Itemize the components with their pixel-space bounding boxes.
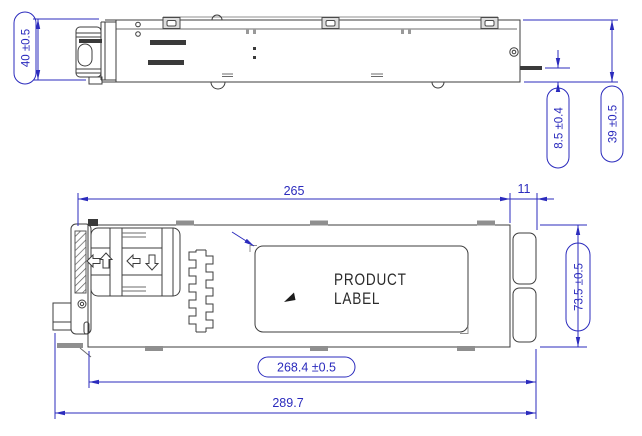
side-handle-grip-strip xyxy=(79,39,102,43)
product-label-line1-wrap: PRODUCT xyxy=(334,271,407,290)
dim-text-73-5: 73.5 ±0.5 xyxy=(574,263,586,311)
dim-plan-connector-depth: 11 xyxy=(510,182,554,230)
plan-connector-top xyxy=(513,233,536,284)
clip-3-loop xyxy=(485,21,494,27)
side-slot-2 xyxy=(148,60,184,65)
side-bottom-bumps xyxy=(211,82,444,89)
dim-side-tab-offset: 8.5 ±0.4 xyxy=(545,50,570,168)
clip-2-loop xyxy=(326,21,335,27)
dim-text-39: 39 ±0.5 xyxy=(608,105,620,143)
dim-plan-body-length: 265 xyxy=(78,184,510,226)
vent-castellation-caps xyxy=(196,250,206,332)
engineering-drawing: PRODUCT LABEL 40 ±0.5 8.5 ±0.4 xyxy=(0,0,642,436)
side-dot-1 xyxy=(253,47,256,50)
product-label-line2-wrap: LABEL xyxy=(334,290,380,309)
side-hole-2 xyxy=(136,32,141,37)
plan-body-outline xyxy=(88,225,510,347)
plan-screw-center xyxy=(80,302,83,305)
side-right-tab xyxy=(520,66,542,70)
plan-bottom-tab-3 xyxy=(457,346,475,351)
side-hook-1 xyxy=(246,29,249,34)
plan-top-tab-2 xyxy=(310,221,328,226)
plan-view: PRODUCT LABEL xyxy=(53,219,536,357)
side-latch-bracket xyxy=(101,22,105,80)
plan-bezel-grip-hatch xyxy=(75,231,86,293)
side-dot-2 xyxy=(253,56,256,59)
vent-castellation-right xyxy=(206,250,213,332)
handle-post-1 xyxy=(110,228,122,296)
handle-post-2 xyxy=(162,228,173,296)
dim-plan-width: 73.5 ±0.5 xyxy=(540,225,590,347)
side-hook-3 xyxy=(401,29,404,34)
side-handle-foot xyxy=(89,77,102,84)
label-leader-arrow xyxy=(232,232,254,246)
side-screw-icon xyxy=(510,48,518,56)
dim-text-11: 11 xyxy=(518,182,531,196)
vent-castellation-left xyxy=(189,250,196,332)
plan-bottom-tab-1 xyxy=(145,346,163,351)
plan-bottom-tab-2 xyxy=(310,346,328,351)
dim-text-265: 265 xyxy=(284,184,305,198)
side-latch-plate xyxy=(105,22,116,80)
dim-text-268-4: 268.4 ±0.5 xyxy=(277,361,336,375)
side-hook-2 xyxy=(253,29,256,34)
side-handle-notch xyxy=(78,44,92,66)
dim-plan-overall-length: 289.7 xyxy=(55,333,536,419)
dim-plan-length-to-connector: 268.4 ±0.5 xyxy=(89,349,536,419)
plan-top-tab-3 xyxy=(477,221,495,226)
plan-screw-icon xyxy=(78,300,86,308)
side-hook-4 xyxy=(408,29,411,34)
arrow-down-icon xyxy=(146,255,158,270)
dim-text-40: 40 ±0.5 xyxy=(21,29,33,67)
product-label-line2: LABEL xyxy=(334,290,380,309)
dim-text-8-5: 8.5 ±0.4 xyxy=(554,107,566,149)
plan-left-protrusion xyxy=(53,303,71,330)
dim-side-height-right: 39 ±0.5 xyxy=(523,20,623,162)
plan-left-foot-bar xyxy=(57,343,83,348)
arrow-left-icon xyxy=(87,255,100,267)
side-equal-marks xyxy=(222,74,383,77)
product-label-line1: PRODUCT xyxy=(334,271,407,290)
label-triangle-mark xyxy=(284,293,296,303)
side-view xyxy=(76,15,542,89)
plan-handle xyxy=(87,228,180,296)
plan-top-tab-1 xyxy=(176,221,194,226)
side-top-clips xyxy=(163,18,498,29)
drawing-canvas: PRODUCT LABEL 40 ±0.5 8.5 ±0.4 xyxy=(0,0,642,436)
side-hole-1 xyxy=(136,22,141,27)
plan-connector-bottom xyxy=(513,288,536,342)
side-slot-1 xyxy=(150,40,186,45)
arrow-left-2-icon xyxy=(127,255,140,267)
clip-1-loop xyxy=(167,21,176,27)
dim-text-289-7: 289.7 xyxy=(272,396,303,410)
side-screw-center xyxy=(512,50,516,54)
